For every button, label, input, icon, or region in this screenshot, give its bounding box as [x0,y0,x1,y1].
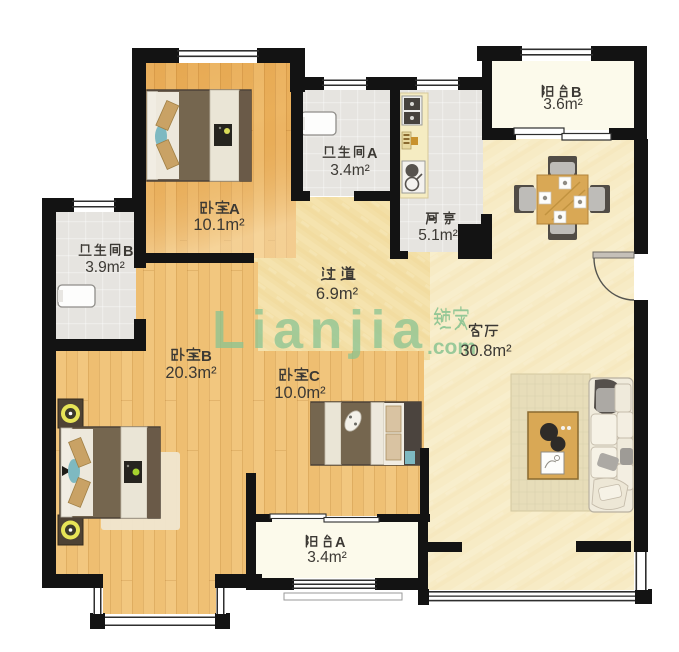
svg-text:10.0m²: 10.0m² [274,384,326,402]
svg-text:30.8m²: 30.8m² [460,342,512,360]
svg-text:B: B [201,348,212,365]
svg-text:3.4m²: 3.4m² [330,162,370,179]
svg-text:6.9m²: 6.9m² [316,285,359,303]
svg-text:10.1m²: 10.1m² [193,216,245,234]
svg-text:Lianjia: Lianjia [212,300,429,360]
svg-text:C: C [309,368,320,385]
svg-text:3.6m²: 3.6m² [543,96,583,113]
svg-text:A: A [367,146,378,162]
svg-text:5.1m²: 5.1m² [418,227,458,244]
svg-text:B: B [123,244,133,260]
svg-text:3.9m²: 3.9m² [85,259,125,276]
svg-text:3.4m²: 3.4m² [307,549,347,566]
svg-text:20.3m²: 20.3m² [165,364,217,382]
